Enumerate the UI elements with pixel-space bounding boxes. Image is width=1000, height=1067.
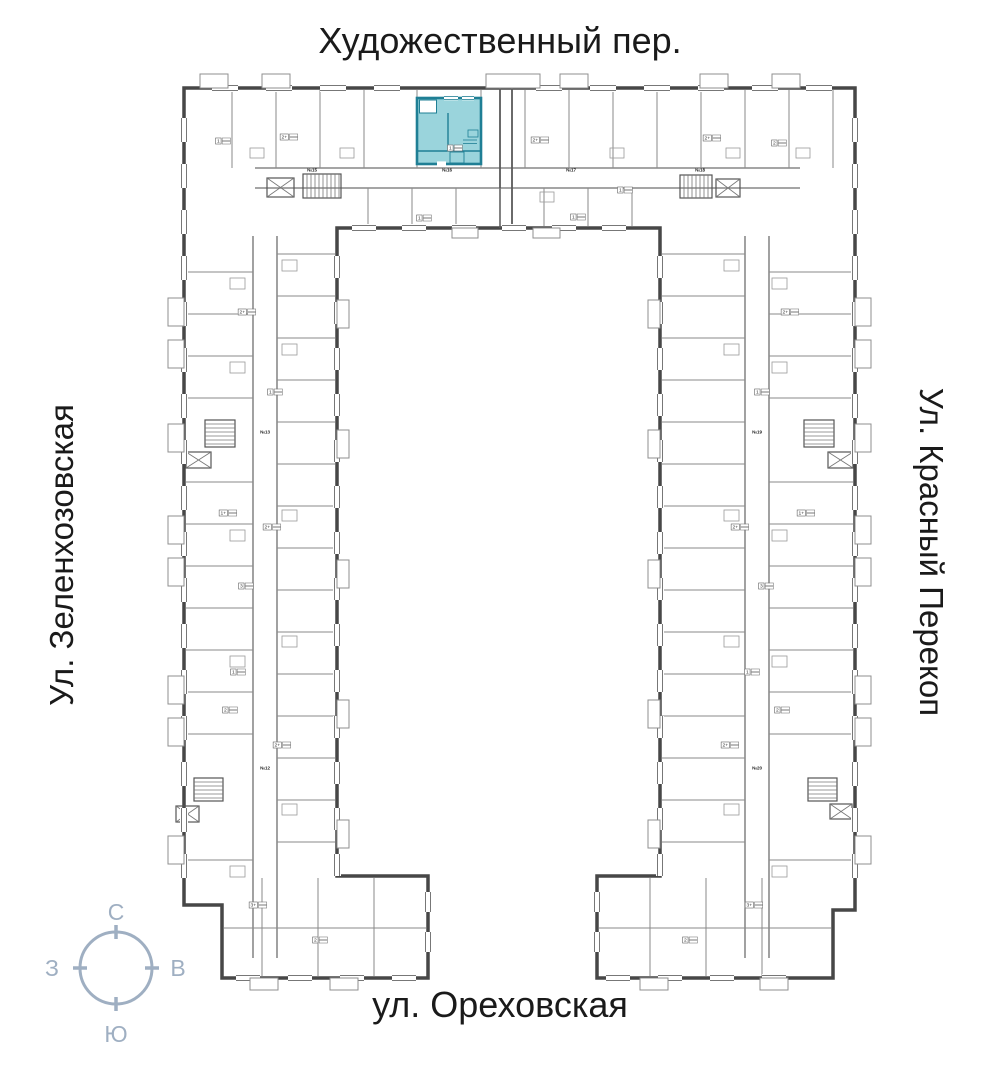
compass-label-east: В <box>170 955 185 981</box>
compass-label-south: Ю <box>104 1021 127 1047</box>
compass-label-west: З <box>45 955 59 981</box>
highlighted-apartment[interactable] <box>417 96 481 166</box>
floorplan-page: Художественный пер. Ул. Зеленхозовская У… <box>0 0 1000 1067</box>
compass-ring <box>80 932 152 1004</box>
compass: С Ю З В <box>28 890 218 1066</box>
building-outline <box>184 88 855 978</box>
compass-label-north: С <box>108 899 125 925</box>
